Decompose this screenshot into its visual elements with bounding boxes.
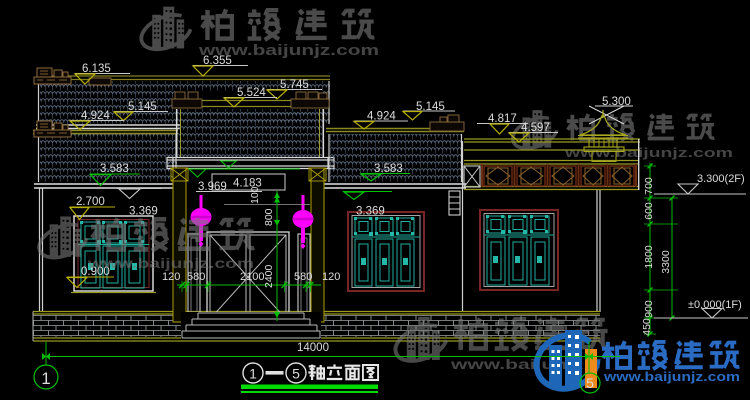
svg-text:3.300(2F): 3.300(2F) <box>697 173 745 185</box>
svg-text:450: 450 <box>641 318 653 336</box>
svg-text:580: 580 <box>187 271 205 283</box>
svg-text:www.baijunjz.com: www.baijunjz.com <box>87 256 254 271</box>
svg-text:3.583: 3.583 <box>100 163 129 175</box>
svg-text:600: 600 <box>643 202 655 220</box>
svg-text:1800: 1800 <box>643 245 655 269</box>
svg-text:2400: 2400 <box>263 264 275 288</box>
svg-text:2.700: 2.700 <box>76 196 105 208</box>
svg-text:800: 800 <box>263 208 275 226</box>
svg-text:700: 700 <box>643 177 655 195</box>
svg-text:1: 1 <box>41 369 50 388</box>
svg-text:3.369: 3.369 <box>129 206 158 218</box>
svg-text:1: 1 <box>249 366 257 382</box>
svg-text:5: 5 <box>586 375 594 391</box>
svg-text:120: 120 <box>322 271 340 283</box>
svg-text:120: 120 <box>162 271 180 283</box>
svg-text:3.369: 3.369 <box>356 206 385 218</box>
svg-text:±0.000(1F): ±0.000(1F) <box>688 299 742 311</box>
svg-text:www.baijunjz.com: www.baijunjz.com <box>603 370 740 384</box>
svg-text:3300: 3300 <box>660 250 672 274</box>
svg-text:580: 580 <box>294 271 312 283</box>
svg-text:14000: 14000 <box>297 342 329 354</box>
svg-text:5.300: 5.300 <box>602 96 631 108</box>
svg-text:900: 900 <box>643 300 655 318</box>
svg-text:5: 5 <box>292 366 300 382</box>
svg-text:100: 100 <box>249 186 261 204</box>
svg-text:2100: 2100 <box>240 271 264 283</box>
